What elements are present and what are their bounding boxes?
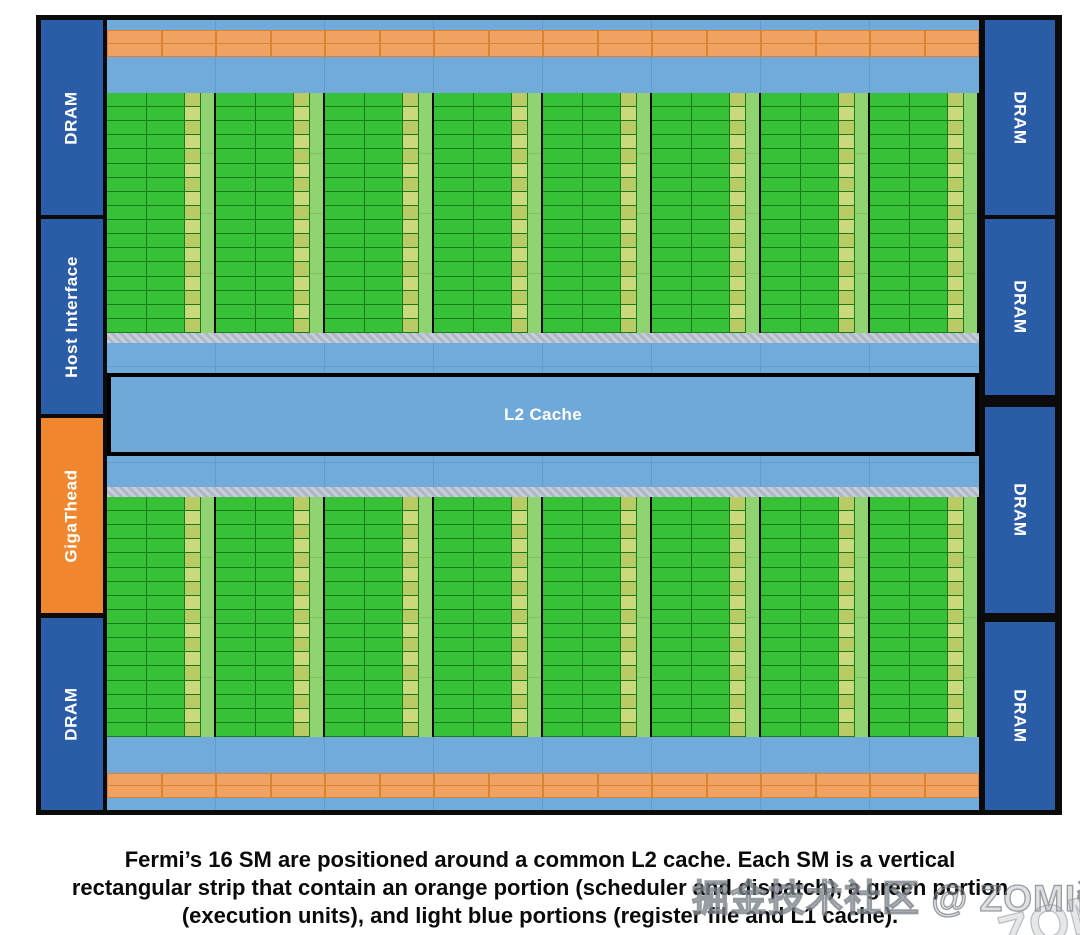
execution-unit-cell [107, 248, 146, 261]
execution-unit-cell [801, 192, 838, 205]
execution-unit-cell [801, 107, 838, 120]
execution-unit-cell [365, 582, 402, 595]
sfu-cell [512, 192, 527, 205]
execution-unit-cell [216, 319, 255, 332]
execution-unit-cell [434, 681, 473, 694]
execution-unit-cell [256, 135, 293, 148]
execution-unit-cell [325, 220, 364, 233]
execution-unit-cell [761, 553, 800, 567]
execution-unit-cell [652, 497, 691, 510]
sfu-cell [621, 695, 636, 708]
chip-core-area: L2 Cache [107, 20, 979, 810]
execution-unit-cell [365, 277, 402, 290]
scheduler-dispatch-cell [217, 31, 270, 43]
register-l1-divider [964, 557, 977, 558]
execution-unit-cell [870, 652, 909, 665]
sfu-cell [403, 305, 418, 318]
sfu-column [294, 93, 309, 333]
sfu-cell [185, 723, 200, 736]
sfu-column [403, 93, 418, 333]
execution-unit-cell [474, 568, 511, 581]
execution-unit-cell [652, 582, 691, 595]
sm-divider-line [433, 737, 434, 773]
sfu-cell [403, 582, 418, 595]
sfu-cell [512, 652, 527, 665]
register-l1-divider [419, 153, 432, 154]
sfu-cell [512, 93, 527, 106]
sfu-cell [403, 107, 418, 120]
execution-unit-cell [474, 709, 511, 722]
sfu-cell [294, 723, 309, 736]
sm-divider-line [324, 366, 325, 373]
sm-divider-line [433, 798, 434, 810]
right-block-label: DRAM [1010, 91, 1030, 144]
sfu-cell [730, 624, 745, 637]
sfu-cell [948, 149, 963, 163]
execution-unit-cell [474, 220, 511, 233]
execution-unit-cell [801, 305, 838, 318]
execution-unit-cell [801, 135, 838, 148]
execution-unit-column [761, 497, 800, 737]
execution-unit-cell [583, 107, 620, 120]
execution-unit-cell [107, 135, 146, 148]
sfu-cell [185, 568, 200, 581]
execution-unit-cell [256, 723, 293, 736]
execution-unit-cell [583, 638, 620, 651]
sm-divider-line [215, 366, 216, 373]
scheduler-dispatch-cell [871, 44, 924, 56]
execution-unit-cell [543, 121, 582, 134]
sfu-cell [294, 121, 309, 134]
execution-unit-cell [365, 638, 402, 651]
scheduler-dispatch-cell [108, 31, 161, 43]
sfu-cell [621, 291, 636, 304]
execution-unit-cell [147, 497, 184, 510]
execution-unit-cell [692, 234, 729, 247]
register-l1-divider [964, 153, 977, 154]
top-register-band [107, 57, 979, 93]
sfu-cell [512, 568, 527, 581]
scheduler-dispatch-cell [599, 31, 651, 43]
execution-unit-cell [761, 149, 800, 163]
execution-unit-cell [583, 525, 620, 538]
sfu-cell [185, 248, 200, 261]
execution-unit-cell [365, 539, 402, 552]
execution-unit-column [692, 497, 729, 737]
execution-unit-cell [256, 107, 293, 120]
sfu-cell [185, 610, 200, 623]
execution-unit-cell [365, 305, 402, 318]
execution-unit-cell [543, 206, 582, 219]
execution-unit-cell [434, 553, 473, 567]
execution-unit-cell [325, 262, 364, 276]
sfu-cell [730, 681, 745, 694]
sfu-cell [621, 666, 636, 680]
execution-unit-cell [434, 291, 473, 304]
sfu-cell [621, 248, 636, 261]
register-l1-divider [310, 617, 323, 618]
sfu-cell [839, 681, 854, 694]
execution-unit-cell [870, 511, 909, 524]
execution-unit-cell [256, 178, 293, 191]
execution-unit-cell [801, 164, 838, 177]
execution-unit-cell [870, 234, 909, 247]
sfu-cell [512, 666, 527, 680]
sfu-cell [185, 206, 200, 219]
execution-unit-cell [216, 262, 255, 276]
execution-unit-cell [474, 553, 511, 567]
right-block-label: DRAM [1010, 689, 1030, 742]
sfu-cell [294, 709, 309, 722]
execution-unit-cell [434, 164, 473, 177]
execution-unit-cell [147, 319, 184, 332]
execution-unit-cell [543, 277, 582, 290]
execution-unit-cell [365, 568, 402, 581]
scheduler-dispatch-cell [435, 774, 488, 785]
sfu-cell [621, 723, 636, 736]
execution-unit-cell [692, 666, 729, 680]
execution-unit-cell [474, 164, 511, 177]
execution-unit-cell [543, 596, 582, 609]
execution-unit-cell [365, 206, 402, 219]
execution-unit-cell [474, 624, 511, 637]
execution-unit-cell [216, 107, 255, 120]
execution-unit-cell [107, 525, 146, 538]
execution-unit-cell [216, 305, 255, 318]
execution-unit-cell [256, 610, 293, 623]
sfu-cell [512, 624, 527, 637]
execution-unit-cell [216, 568, 255, 581]
execution-unit-cell [216, 709, 255, 722]
sfu-cell [185, 164, 200, 177]
sfu-cell [948, 709, 963, 722]
register-l1-divider [528, 677, 541, 678]
register-l1-divider [855, 677, 868, 678]
execution-unit-cell [107, 652, 146, 665]
execution-unit-cell [801, 723, 838, 736]
execution-unit-column [325, 93, 364, 333]
execution-unit-cell [365, 666, 402, 680]
execution-unit-cell [256, 624, 293, 637]
sfu-cell [730, 149, 745, 163]
execution-unit-cell [474, 666, 511, 680]
execution-unit-cell [910, 539, 947, 552]
execution-unit-cell [147, 638, 184, 651]
sfu-cell [730, 121, 745, 134]
sm-divider-line [215, 20, 216, 30]
execution-unit-cell [147, 695, 184, 708]
execution-unit-cell [434, 596, 473, 609]
sm-strip [216, 93, 323, 333]
sfu-cell [948, 638, 963, 651]
sm-divider-line [215, 343, 216, 366]
sfu-cell [403, 525, 418, 538]
execution-unit-cell [910, 192, 947, 205]
execution-unit-cell [434, 511, 473, 524]
execution-unit-cell [761, 121, 800, 134]
sfu-cell [512, 638, 527, 651]
sfu-cell [185, 178, 200, 191]
sfu-cell [512, 248, 527, 261]
sfu-cell [185, 624, 200, 637]
execution-unit-cell [107, 539, 146, 552]
execution-unit-cell [870, 305, 909, 318]
execution-unit-cell [107, 93, 146, 106]
sfu-cell [730, 709, 745, 722]
execution-unit-cell [216, 638, 255, 651]
sm-divider-line [869, 57, 870, 93]
sfu-cell [512, 178, 527, 191]
sfu-cell [294, 497, 309, 510]
execution-unit-cell [365, 723, 402, 736]
upper-l2-blue-band [107, 343, 979, 366]
execution-unit-cell [107, 164, 146, 177]
register-l1-divider [528, 617, 541, 618]
execution-unit-cell [216, 220, 255, 233]
register-l1-divider [746, 557, 759, 558]
execution-unit-cell [107, 723, 146, 736]
sm-divider-line [542, 798, 543, 810]
execution-unit-cell [543, 262, 582, 276]
execution-unit-cell [910, 135, 947, 148]
register-l1-column [528, 497, 541, 737]
sfu-column [621, 93, 636, 333]
scheduler-dispatch-cell [108, 774, 161, 785]
sfu-cell [403, 149, 418, 163]
sfu-cell [621, 107, 636, 120]
execution-unit-cell [325, 206, 364, 219]
sfu-cell [730, 262, 745, 276]
execution-unit-cell [147, 206, 184, 219]
execution-unit-cell [652, 596, 691, 609]
execution-unit-cell [365, 107, 402, 120]
execution-unit-cell [870, 723, 909, 736]
execution-unit-cell [801, 652, 838, 665]
sfu-column [730, 497, 745, 737]
execution-unit-cell [801, 582, 838, 595]
sfu-cell [294, 624, 309, 637]
register-l1-divider [637, 153, 650, 154]
execution-unit-cell [434, 539, 473, 552]
execution-unit-column [365, 93, 402, 333]
sfu-cell [948, 681, 963, 694]
execution-unit-cell [434, 610, 473, 623]
execution-unit-cell [910, 277, 947, 290]
execution-unit-cell [910, 568, 947, 581]
top-edge-blue-band [107, 20, 979, 30]
sfu-cell [403, 709, 418, 722]
execution-unit-cell [761, 234, 800, 247]
execution-unit-cell [365, 234, 402, 247]
sfu-cell [621, 525, 636, 538]
execution-unit-cell [761, 709, 800, 722]
sfu-cell [294, 539, 309, 552]
execution-unit-cell [652, 638, 691, 651]
execution-unit-cell [107, 511, 146, 524]
execution-unit-cell [474, 135, 511, 148]
execution-unit-cell [474, 610, 511, 623]
sfu-cell [730, 206, 745, 219]
sfu-cell [948, 319, 963, 332]
sm-divider-line [215, 798, 216, 810]
execution-unit-cell [365, 652, 402, 665]
sm-strip [325, 497, 432, 737]
execution-unit-cell [801, 234, 838, 247]
execution-unit-cell [147, 652, 184, 665]
execution-unit-column [107, 497, 146, 737]
execution-unit-cell [692, 624, 729, 637]
execution-unit-cell [870, 539, 909, 552]
execution-unit-cell [216, 178, 255, 191]
execution-unit-cell [434, 624, 473, 637]
scheduler-dispatch-cell [817, 774, 869, 785]
execution-unit-cell [256, 681, 293, 694]
execution-unit-cell [474, 178, 511, 191]
execution-unit-cell [474, 107, 511, 120]
sfu-column [403, 497, 418, 737]
execution-unit-cell [434, 262, 473, 276]
execution-unit-cell [910, 638, 947, 651]
upper-l2-thin-band [107, 366, 979, 373]
sfu-cell [512, 262, 527, 276]
execution-unit-cell [692, 610, 729, 623]
execution-unit-cell [910, 582, 947, 595]
execution-unit-cell [583, 262, 620, 276]
execution-unit-cell [325, 695, 364, 708]
sfu-cell [730, 553, 745, 567]
sfu-cell [294, 206, 309, 219]
register-l1-divider [746, 153, 759, 154]
execution-unit-cell [543, 248, 582, 261]
execution-unit-column [583, 497, 620, 737]
sfu-cell [512, 234, 527, 247]
execution-unit-cell [910, 220, 947, 233]
execution-unit-cell [910, 262, 947, 276]
sm-divider-line [324, 737, 325, 773]
execution-unit-cell [761, 206, 800, 219]
sfu-cell [294, 695, 309, 708]
execution-unit-cell [325, 610, 364, 623]
execution-unit-cell [801, 610, 838, 623]
sfu-cell [948, 525, 963, 538]
sfu-cell [948, 695, 963, 708]
execution-unit-cell [325, 709, 364, 722]
sfu-cell [403, 248, 418, 261]
execution-unit-cell [216, 525, 255, 538]
sfu-cell [621, 206, 636, 219]
execution-unit-cell [692, 277, 729, 290]
execution-unit-cell [692, 568, 729, 581]
sfu-cell [839, 93, 854, 106]
sfu-column [185, 93, 200, 333]
execution-unit-cell [325, 553, 364, 567]
sfu-cell [621, 178, 636, 191]
sfu-cell [294, 568, 309, 581]
execution-unit-cell [365, 596, 402, 609]
sfu-cell [621, 319, 636, 332]
execution-unit-cell [474, 121, 511, 134]
execution-unit-cell [107, 695, 146, 708]
register-l1-divider [637, 213, 650, 214]
execution-unit-cell [147, 277, 184, 290]
execution-unit-cell [474, 248, 511, 261]
sm-divider-line [651, 798, 652, 810]
execution-unit-cell [543, 610, 582, 623]
sfu-cell [839, 192, 854, 205]
execution-unit-cell [474, 262, 511, 276]
execution-unit-cell [147, 121, 184, 134]
execution-unit-cell [692, 164, 729, 177]
execution-unit-cell [434, 277, 473, 290]
execution-unit-cell [474, 511, 511, 524]
execution-unit-cell [761, 666, 800, 680]
execution-unit-cell [543, 107, 582, 120]
left-block-label: GigaThead [62, 469, 82, 562]
sm-strip [870, 93, 977, 333]
execution-unit-cell [474, 539, 511, 552]
execution-unit-cell [801, 206, 838, 219]
register-l1-divider [201, 557, 214, 558]
execution-unit-cell [543, 709, 582, 722]
sm-strip [761, 93, 868, 333]
sfu-cell [185, 525, 200, 538]
execution-unit-cell [474, 596, 511, 609]
sfu-cell [839, 652, 854, 665]
register-l1-divider [637, 557, 650, 558]
execution-unit-cell [692, 652, 729, 665]
sfu-cell [839, 234, 854, 247]
sfu-cell [839, 610, 854, 623]
execution-unit-cell [216, 121, 255, 134]
sfu-cell [512, 206, 527, 219]
sfu-cell [294, 681, 309, 694]
sm-divider-line [324, 57, 325, 93]
execution-unit-cell [107, 291, 146, 304]
execution-unit-cell [583, 220, 620, 233]
sfu-cell [294, 638, 309, 651]
sfu-cell [839, 709, 854, 722]
sfu-cell [403, 262, 418, 276]
left-block-gigathead: GigaThead [41, 418, 103, 613]
sm-strip [761, 497, 868, 737]
scheduler-dispatch-cell [381, 786, 433, 797]
execution-unit-cell [543, 164, 582, 177]
sm-divider-line [542, 366, 543, 373]
sm-divider-line [651, 343, 652, 366]
right-block-dram-2: DRAM [985, 407, 1055, 613]
sm-strip [107, 93, 214, 333]
sfu-cell [403, 220, 418, 233]
execution-unit-cell [434, 135, 473, 148]
execution-unit-cell [652, 178, 691, 191]
sfu-cell [294, 234, 309, 247]
register-l1-column [310, 93, 323, 333]
execution-unit-cell [692, 305, 729, 318]
execution-unit-cell [910, 319, 947, 332]
left-block-label: DRAM [62, 91, 82, 144]
sfu-cell [730, 652, 745, 665]
sfu-cell [948, 277, 963, 290]
execution-unit-cell [147, 291, 184, 304]
execution-unit-cell [434, 568, 473, 581]
execution-unit-cell [870, 610, 909, 623]
sm-divider-line [651, 57, 652, 93]
scheduler-dispatch-cell [599, 44, 651, 56]
sfu-cell [294, 291, 309, 304]
sfu-cell [294, 319, 309, 332]
execution-unit-cell [216, 553, 255, 567]
sfu-cell [839, 497, 854, 510]
